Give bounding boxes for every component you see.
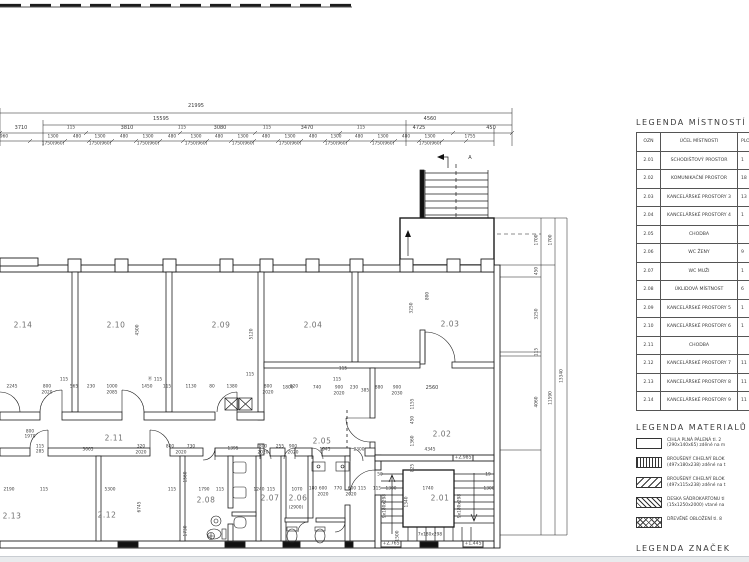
- legend-symbols-title: LEGENDA ZNAČEK: [636, 544, 749, 553]
- room-area-cell: 9: [738, 244, 749, 263]
- room-purpose-cell: KOMUNIKAČNÍ PROSTOR: [661, 170, 738, 189]
- room-number-cell: 2.11: [637, 336, 661, 355]
- cad-viewport: 2.142.102.092.042.032.112.052.022.132.12…: [0, 0, 749, 562]
- material-description: CIHLA PLNÁ PÁLENÁ tl. 2(290x140x65) zděn…: [667, 438, 725, 450]
- room-number-cell: 2.03: [637, 188, 661, 207]
- legend-room-row: 2.09KANCELÁŘSKÉ PROSTORY 51: [637, 299, 749, 318]
- legend-room-row: 2.13KANCELÁŘSKÉ PROSTORY 811: [637, 373, 749, 392]
- legend-rooms-table: OZNÚČEL MÍSTNOSTIPLO2.01SCHODIŠŤOVÝ PROS…: [636, 132, 749, 411]
- room-area-cell: [738, 336, 749, 355]
- material-description: BROUŠENÝ CIHELNÝ BLOK(497x115x238) zděné…: [667, 477, 725, 489]
- legend-room-row: 2.03KANCELÁŘSKÉ PROSTORY 313: [637, 188, 749, 207]
- room-area-cell: 11: [738, 392, 749, 411]
- room-purpose-cell: WC MUŽI: [661, 262, 738, 281]
- material-description: DESKA SÁDROKARTONU tl(15x1250x2000) vtan…: [667, 497, 724, 509]
- legend-room-row: 2.07WC MUŽI1: [637, 262, 749, 281]
- legend-room-row: 2.12KANCELÁŘSKÉ PROSTORY 711: [637, 355, 749, 374]
- room-purpose-cell: CHODBA: [661, 225, 738, 244]
- material-description: DŘEVĚNÉ OBLOŽENÍ tl. 8: [667, 517, 722, 523]
- room-area-cell: 6: [738, 281, 749, 300]
- room-purpose-cell: KANCELÁŘSKÉ PROSTORY 4: [661, 207, 738, 226]
- room-purpose-cell: ÚČEL MÍSTNOSTI: [661, 133, 738, 152]
- room-area-cell: PLO: [738, 133, 749, 152]
- room-number-cell: 2.05: [637, 225, 661, 244]
- room-number-cell: 2.04: [637, 207, 661, 226]
- room-purpose-cell: SCHODIŠŤOVÝ PROSTOR: [661, 151, 738, 170]
- room-number-cell: 2.10: [637, 318, 661, 337]
- room-number-cell: 2.06: [637, 244, 661, 263]
- legend-materials-list: CIHLA PLNÁ PÁLENÁ tl. 2(290x140x65) zděn…: [636, 438, 749, 529]
- room-area-cell: 1: [738, 151, 749, 170]
- legend-rooms-header-row: OZNÚČEL MÍSTNOSTIPLO: [637, 133, 749, 152]
- room-area-cell: 1: [738, 207, 749, 226]
- legend-room-row: 2.14KANCELÁŘSKÉ PROSTORY 911: [637, 392, 749, 411]
- room-purpose-cell: KANCELÁŘSKÉ PROSTORY 9: [661, 392, 738, 411]
- material-item: BROUŠENÝ CIHELNÝ BLOK(497x180x238) zděné…: [636, 457, 749, 469]
- room-area-cell: 1: [738, 262, 749, 281]
- exterior-stair: [420, 164, 488, 218]
- legend-panel: LEGENDA MÍSTNOSTÍ OZNÚČEL MÍSTNOSTIPLO2.…: [636, 118, 749, 553]
- room-number-cell: 2.14: [637, 392, 661, 411]
- room-area-cell: 13: [738, 188, 749, 207]
- room-number-cell: 2.13: [637, 373, 661, 392]
- material-swatch-diagwide: [636, 477, 662, 488]
- floor-plan-drawing: [0, 0, 620, 562]
- material-swatch-solid: [636, 438, 662, 449]
- legend-room-row: 2.10KANCELÁŘSKÉ PROSTORY 61: [637, 318, 749, 337]
- section-marker-A: [437, 154, 448, 168]
- material-description: BROUŠENÝ CIHELNÝ BLOK(497x180x238) zděné…: [667, 457, 725, 469]
- staircase: [375, 455, 494, 548]
- room-area-cell: 18: [738, 170, 749, 189]
- legend-rooms-title: LEGENDA MÍSTNOSTÍ: [636, 118, 749, 127]
- room-number-cell: 2.09: [637, 299, 661, 318]
- legend-materials-title: LEGENDA MATERIALŮ: [636, 423, 749, 432]
- room-number-cell: 2.02: [637, 170, 661, 189]
- room-purpose-cell: CHODBA: [661, 336, 738, 355]
- adjacent-drawing-edge: [0, 5, 352, 7]
- room-purpose-cell: KANCELÁŘSKÉ PROSTORY 6: [661, 318, 738, 337]
- dimension-lines-right: [494, 218, 567, 535]
- material-swatch-cross: [636, 517, 662, 528]
- material-item: DŘEVĚNÉ OBLOŽENÍ tl. 8: [636, 517, 749, 528]
- material-item: BROUŠENÝ CIHELNÝ BLOK(497x115x238) zděné…: [636, 477, 749, 489]
- shaft: [225, 398, 252, 410]
- legend-room-row: 2.11CHODBA: [637, 336, 749, 355]
- legend-room-row: 2.05CHODBA: [637, 225, 749, 244]
- room-purpose-cell: KANCELÁŘSKÉ PROSTORY 3: [661, 188, 738, 207]
- legend-room-row: 2.01SCHODIŠŤOVÝ PROSTOR1: [637, 151, 749, 170]
- room-purpose-cell: KANCELÁŘSKÉ PROSTORY 7: [661, 355, 738, 374]
- dimension-lines-top: [0, 108, 514, 146]
- legend-room-row: 2.02KOMUNIKAČNÍ PROSTOR18: [637, 170, 749, 189]
- room-number-cell: 2.12: [637, 355, 661, 374]
- room-number-cell: 2.01: [637, 151, 661, 170]
- room-purpose-cell: KANCELÁŘSKÉ PROSTORY 8: [661, 373, 738, 392]
- room-number-cell: 2.08: [637, 281, 661, 300]
- room-area-cell: 1: [738, 299, 749, 318]
- room-area-cell: 11: [738, 355, 749, 374]
- window-bottom-strip: [0, 556, 749, 562]
- room-purpose-cell: ÚKLIDOVÁ MÍSTNOST: [661, 281, 738, 300]
- room-area-cell: [738, 225, 749, 244]
- legend-room-row: 2.08ÚKLIDOVÁ MÍSTNOST6: [637, 281, 749, 300]
- room-purpose-cell: WC ŽENY: [661, 244, 738, 263]
- material-item: CIHLA PLNÁ PÁLENÁ tl. 2(290x140x65) zděn…: [636, 438, 749, 450]
- material-swatch-diagdense: [636, 497, 662, 508]
- room-number-cell: 2.07: [637, 262, 661, 281]
- material-item: DESKA SÁDROKARTONU tl(15x1250x2000) vtan…: [636, 497, 749, 509]
- room-purpose-cell: KANCELÁŘSKÉ PROSTORY 5: [661, 299, 738, 318]
- room-area-cell: 11: [738, 373, 749, 392]
- legend-room-row: 2.06WC ŽENY9: [637, 244, 749, 263]
- terrace: [400, 218, 494, 265]
- room-number-cell: OZN: [637, 133, 661, 152]
- legend-room-row: 2.04KANCELÁŘSKÉ PROSTORY 41: [637, 207, 749, 226]
- material-swatch-vlines: [636, 457, 662, 468]
- room-area-cell: 1: [738, 318, 749, 337]
